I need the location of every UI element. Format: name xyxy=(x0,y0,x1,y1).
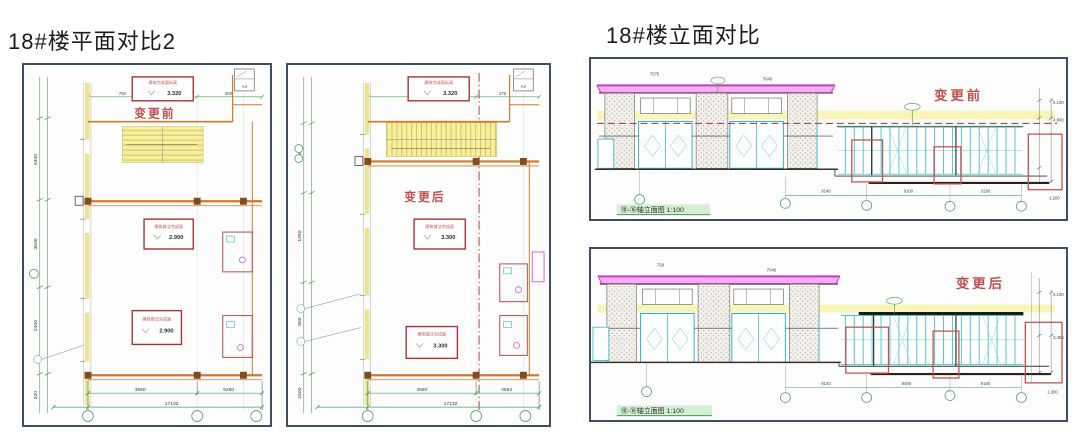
grid-bubble xyxy=(29,269,38,278)
level-note: 建筑完成面标高 xyxy=(424,79,453,85)
change-before-label: 变更前 xyxy=(134,107,175,121)
elevation-after-panel: 758 7040 5.100 3.350 1.200 xyxy=(589,247,1068,422)
change-before-label: 变更前 xyxy=(934,87,983,103)
leader-note xyxy=(297,294,361,346)
level-value: 3.300 xyxy=(441,235,455,241)
left-wall xyxy=(360,83,371,405)
bottom-wall xyxy=(85,372,263,380)
dim-bottom-2: 8490 xyxy=(902,381,912,386)
level-band xyxy=(597,305,1055,313)
dim-bottom-3: 9160 xyxy=(981,381,991,386)
roof xyxy=(597,85,835,92)
plan-before-panel: 6400 3600 2400 320 750 900 xyxy=(22,63,272,427)
grid-bubbles xyxy=(83,411,262,422)
dim-bottom-1: 9140 xyxy=(821,381,831,386)
dim-right-2: 3.350 xyxy=(1053,335,1064,340)
plan-after-drawing: 8400 1450 900 2400 1782 276 xyxy=(288,65,549,425)
level-value: 3.320 xyxy=(167,91,181,97)
dim-top-1: 750 xyxy=(119,91,127,96)
right-dimension-stack xyxy=(1037,88,1053,183)
top-label-1: 758 xyxy=(657,263,665,268)
level-annotation-box-bottom: 建筑做法完成面 3.300 xyxy=(406,327,457,359)
dim-right-1: 5.100 xyxy=(1053,100,1064,105)
leader-note xyxy=(34,345,83,363)
corner-detail-box: A4 xyxy=(514,69,534,91)
elevation-after-drawing: 758 7040 5.100 3.350 1.200 xyxy=(591,249,1066,420)
dim-left-4: 2400 xyxy=(297,387,303,398)
dim-total: 17132 xyxy=(165,401,179,407)
facade-right-block xyxy=(839,313,1051,374)
level-note: 建筑完成面标高 xyxy=(148,79,177,85)
facade-left-block xyxy=(591,284,841,362)
dim-bottom-2: 5280 xyxy=(223,387,234,393)
level-value: 3.320 xyxy=(443,91,457,97)
plan-comparison-title: 18#楼平面对比2 xyxy=(8,24,176,56)
drawing-caption: ⑩-⑯轴立面图 1:100 xyxy=(617,405,712,415)
top-label-1: 7075 xyxy=(650,72,660,77)
level-note: 建筑做法完成面 xyxy=(425,223,454,229)
change-after-label: 变更后 xyxy=(404,190,445,204)
top-label-2: 7040 xyxy=(763,76,773,81)
dim-total: 17132 xyxy=(444,401,458,407)
level-annotation-box-top: 建筑完成面标高 3.320 xyxy=(408,77,469,101)
bottom-dimension-lines xyxy=(316,381,542,410)
middle-wall xyxy=(75,196,262,205)
dim-left-2: 3600 xyxy=(33,238,39,249)
facade-left-block xyxy=(595,93,839,169)
level-note: 建筑做法完成面 xyxy=(142,316,171,322)
facade-right-block xyxy=(835,126,1049,183)
dim-left-4: 320 xyxy=(33,391,39,400)
caption-text: ⑩-⑯轴立面图 1:100 xyxy=(621,406,684,415)
corner-detail-box: A4 xyxy=(235,69,255,91)
dim-left-2: 1450 xyxy=(297,230,303,241)
grid-bubbles xyxy=(362,411,530,422)
middle-wall xyxy=(355,156,539,165)
level-value: 2.900 xyxy=(159,328,173,334)
level-value: 2.900 xyxy=(169,235,183,241)
bottom-grid xyxy=(642,362,1027,402)
right-dimension-stack xyxy=(1031,272,1053,383)
level-value: 3.300 xyxy=(433,343,447,349)
slide-canvas: 18#楼平面对比2 18#楼立面对比 6400 3600 2400 320 xyxy=(0,0,1080,435)
plan-after-panel: 8400 1450 900 2400 1782 276 xyxy=(286,63,551,427)
dim-right-1: 5.100 xyxy=(1053,292,1064,297)
staircase xyxy=(122,127,203,163)
corner-tag-label: A4 xyxy=(242,84,248,89)
dim-bottom-1: 3550 xyxy=(135,387,146,393)
dim-right-3: 1.200 xyxy=(1047,390,1058,395)
left-wall xyxy=(80,83,91,405)
dim-bottom-2: 3564 xyxy=(501,387,512,393)
dim-left-3: 900 xyxy=(297,317,303,326)
level-note: 建筑做法完成面 xyxy=(417,330,446,336)
dim-bottom-1: 3550 xyxy=(416,387,427,393)
dim-bottom-3: 9160 xyxy=(981,189,991,194)
plan-before-drawing: 6400 3600 2400 320 750 900 xyxy=(24,65,270,425)
elevation-before-panel: 7075 7040 5.100 4.800 1.200 xyxy=(589,57,1068,221)
dim-top-2: 276 xyxy=(499,91,507,96)
right-rooms xyxy=(500,161,544,375)
bottom-wall xyxy=(364,372,539,380)
level-annotation-box-top: 建筑完成面标高 3.320 xyxy=(132,77,193,101)
dim-right-2: 4.800 xyxy=(1053,117,1064,122)
dim-top-2: 900 xyxy=(225,91,233,96)
top-label-2: 7040 xyxy=(767,268,777,273)
elevation-comparison-title: 18#楼立面对比 xyxy=(606,18,761,50)
dim-right-3: 1.200 xyxy=(1049,196,1060,201)
left-dimension-lines xyxy=(301,77,315,413)
dim-bottom-2: 9100 xyxy=(904,189,914,194)
elevation-before-drawing: 7075 7040 5.100 4.800 1.200 xyxy=(591,59,1066,219)
level-annotation-box-mid: 建筑做法完成面 3.300 xyxy=(414,219,465,249)
level-annotation-box-mid: 建筑做法完成面 2.900 xyxy=(144,219,193,249)
staircase xyxy=(386,123,496,157)
drawing-caption: ⑩-⑯轴立面图 1:100 xyxy=(617,204,710,214)
level-annotation-box-bottom: 建筑做法完成面 2.900 xyxy=(132,311,181,345)
dim-bottom-1: 9140 xyxy=(821,189,831,194)
caption-text: ⑩-⑯轴立面图 1:100 xyxy=(621,205,684,214)
change-after-label: 变更后 xyxy=(956,275,1005,291)
corner-tag-label: A4 xyxy=(521,84,527,89)
dim-left-3: 2400 xyxy=(33,320,39,331)
roof xyxy=(598,276,840,283)
right-rooms xyxy=(223,122,253,376)
level-note: 建筑做法完成面 xyxy=(154,223,183,229)
dim-left-1: 6400 xyxy=(33,154,39,165)
